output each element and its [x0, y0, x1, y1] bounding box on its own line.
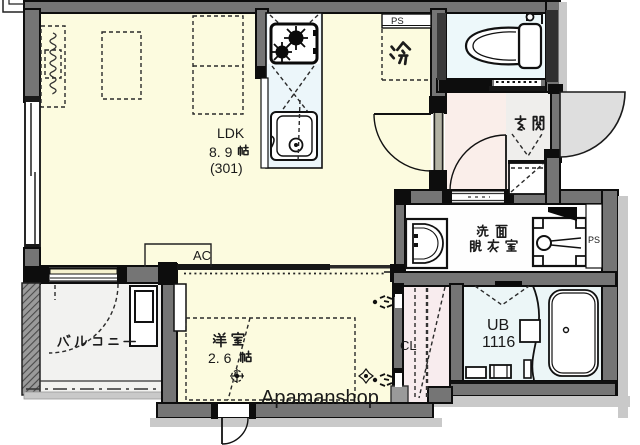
svg-text:UB: UB	[487, 317, 509, 334]
svg-text:2. 6: 2. 6	[208, 350, 232, 366]
svg-text:1116: 1116	[482, 334, 515, 351]
svg-text:LDK: LDK	[217, 125, 245, 141]
svg-text:AC: AC	[193, 248, 211, 263]
svg-text:(301): (301)	[210, 160, 243, 176]
svg-text:CL: CL	[400, 338, 417, 353]
svg-text:PS: PS	[391, 16, 404, 27]
svg-text:PS: PS	[588, 235, 600, 245]
svg-text:8. 9: 8. 9	[209, 144, 233, 160]
svg-text:Apamanshop: Apamanshop	[261, 387, 379, 409]
